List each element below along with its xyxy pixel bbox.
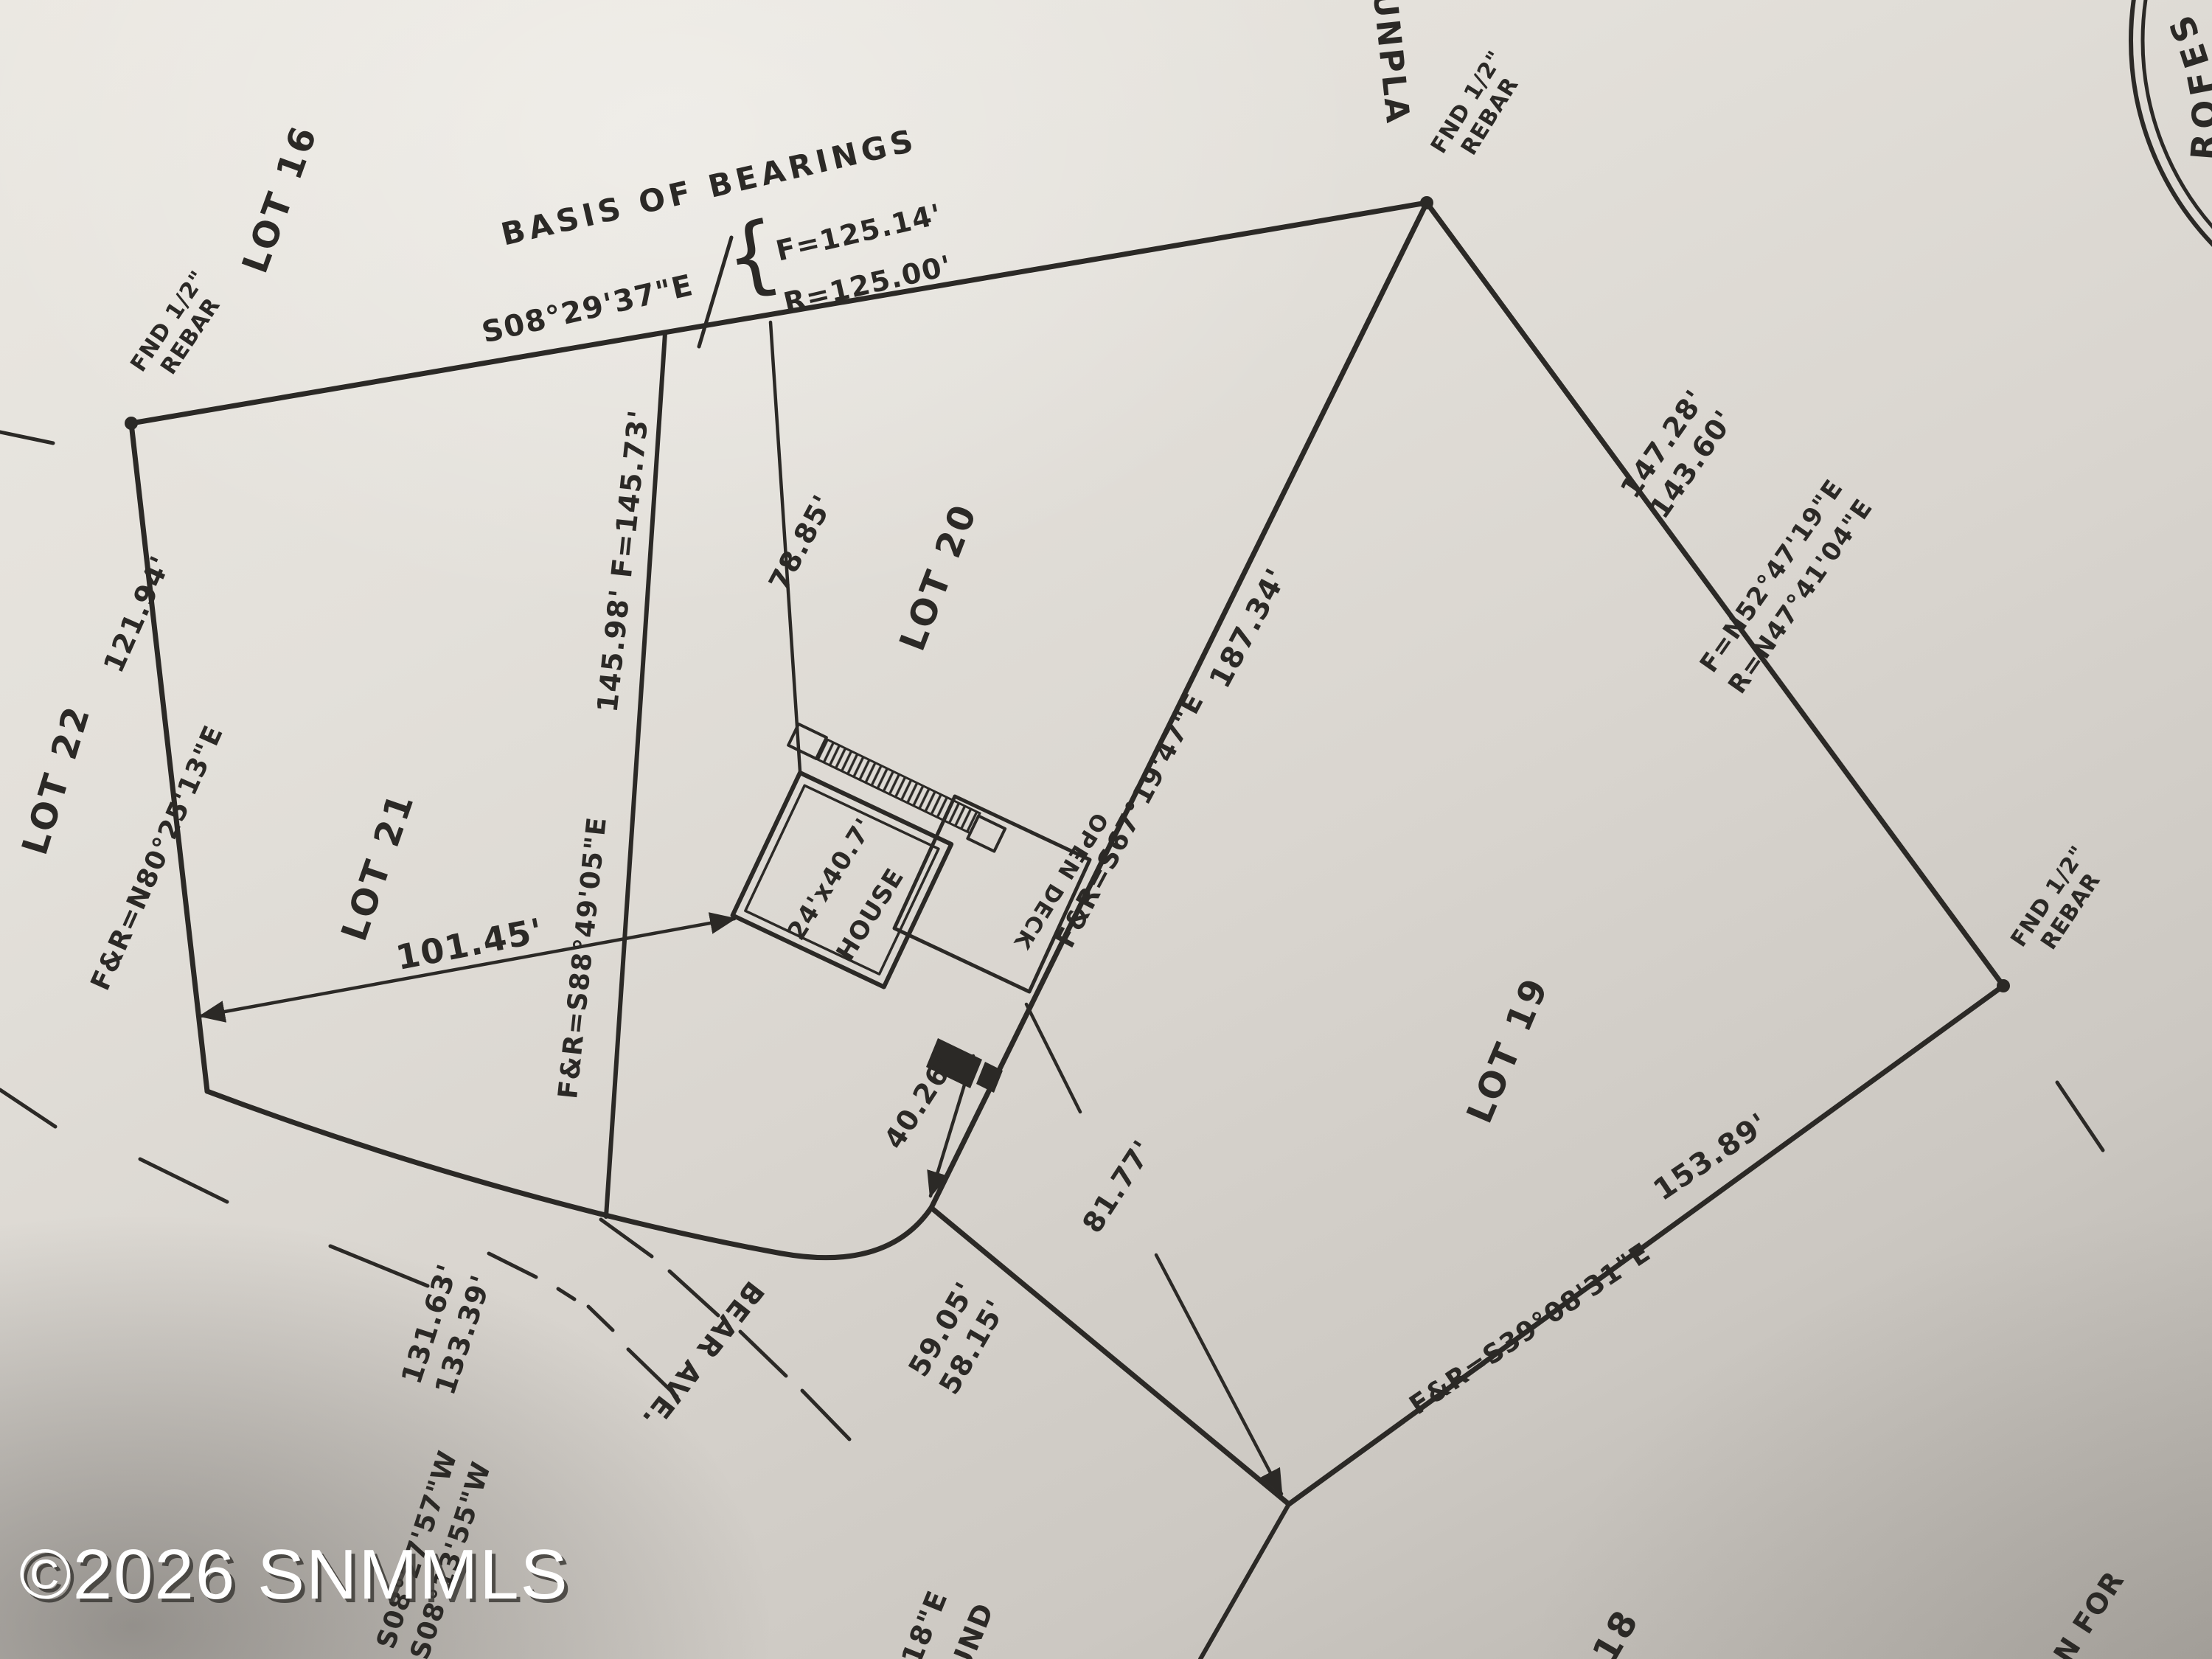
plat-drawing: ROFESS BASIS OF BEARINGS S08°29'37"E { F… <box>0 0 2212 1659</box>
bearing-s39-08-31: F&R=S39°08'31"E <box>1405 1237 1657 1421</box>
distance-147-143-block: 147.28' 143.60' <box>1614 383 1741 524</box>
bearing-s67-19-47: F&R=S67°19'47"E <box>1050 688 1210 953</box>
surveyor-seal: ROFESS <box>0 0 2212 335</box>
bearing-s88-49-05: F&R=S88°49'05"E <box>553 815 613 1100</box>
watermark-text: ©2026 SNMMLS <box>19 1535 569 1614</box>
labels: BASIS OF BEARINGS S08°29'37"E { F=125.14… <box>14 0 2130 1659</box>
distance-153-89: 153.89' <box>1647 1107 1775 1208</box>
unplatted-label-clipped: UNPLA <box>1366 0 1417 127</box>
lot-20-label: LOT 20 <box>891 497 986 656</box>
boundary-line-northeast <box>1427 203 2003 986</box>
distance-81-77: 81.77' <box>1076 1134 1160 1239</box>
boundary-lines <box>0 196 2103 1659</box>
fragment-found: UND <box>943 1598 1001 1659</box>
lot-21-label: LOT 21 <box>333 786 422 946</box>
boundary-line-southeast <box>1289 986 2003 1504</box>
bearing-n80-25-13: F&R=N80°25'13"E <box>86 720 230 995</box>
corner-monument-dot-west <box>125 417 138 430</box>
edge-tick-line <box>0 432 53 443</box>
porch-stairs-strip <box>786 724 1007 852</box>
seal-arc-text: ROFESS <box>0 0 2212 161</box>
tie-line-81-lower <box>1156 1255 1281 1494</box>
watermark: ©2026 SNMMLS ©2026 SNMMLS <box>19 1535 573 1618</box>
corner-monument-dot-north <box>1420 196 1433 209</box>
fnd-rebar-label-west: FND 1/2" REBAR <box>125 266 234 392</box>
fragment-bearing-18e: 18"E <box>895 1585 954 1659</box>
stray-mark-line <box>2057 1082 2103 1150</box>
distance-121-94: 121.94' <box>97 551 178 678</box>
lot-19-label: LOT 19 <box>1458 970 1557 1129</box>
fnd-rebar-label-north: FND 1/2" REBAR <box>1426 46 1532 173</box>
frontage-distance-block: 59.05' 58.15' <box>902 1276 1012 1400</box>
corner-monument-dot-east <box>1997 979 2010 992</box>
plat-paper: ROFESS BASIS OF BEARINGS S08°29'37"E { F… <box>0 0 2212 1659</box>
distance-145-98: 145.98' F=145.73' <box>591 408 655 714</box>
fnd-rebar-label-east: FND 1/2" REBAR <box>2006 841 2114 967</box>
road-frontage-line <box>207 1091 931 1258</box>
bearing-n52-n47-block: F=N52°47'19"E R=N47°41'04"E <box>1694 473 1879 699</box>
distance-78-85: 78.85' <box>762 489 840 596</box>
tie-line-81-upper <box>1026 1004 1080 1112</box>
lot-16-label: LOT 16 <box>234 119 326 278</box>
fragment-n-for: N FOR <box>2048 1565 2131 1659</box>
lot-18-label-clipped: LOT 18 <box>1534 1601 1647 1659</box>
boundary-line-lot18-continuation <box>1200 1504 1289 1659</box>
lot-22-label: LOT 22 <box>14 700 99 860</box>
